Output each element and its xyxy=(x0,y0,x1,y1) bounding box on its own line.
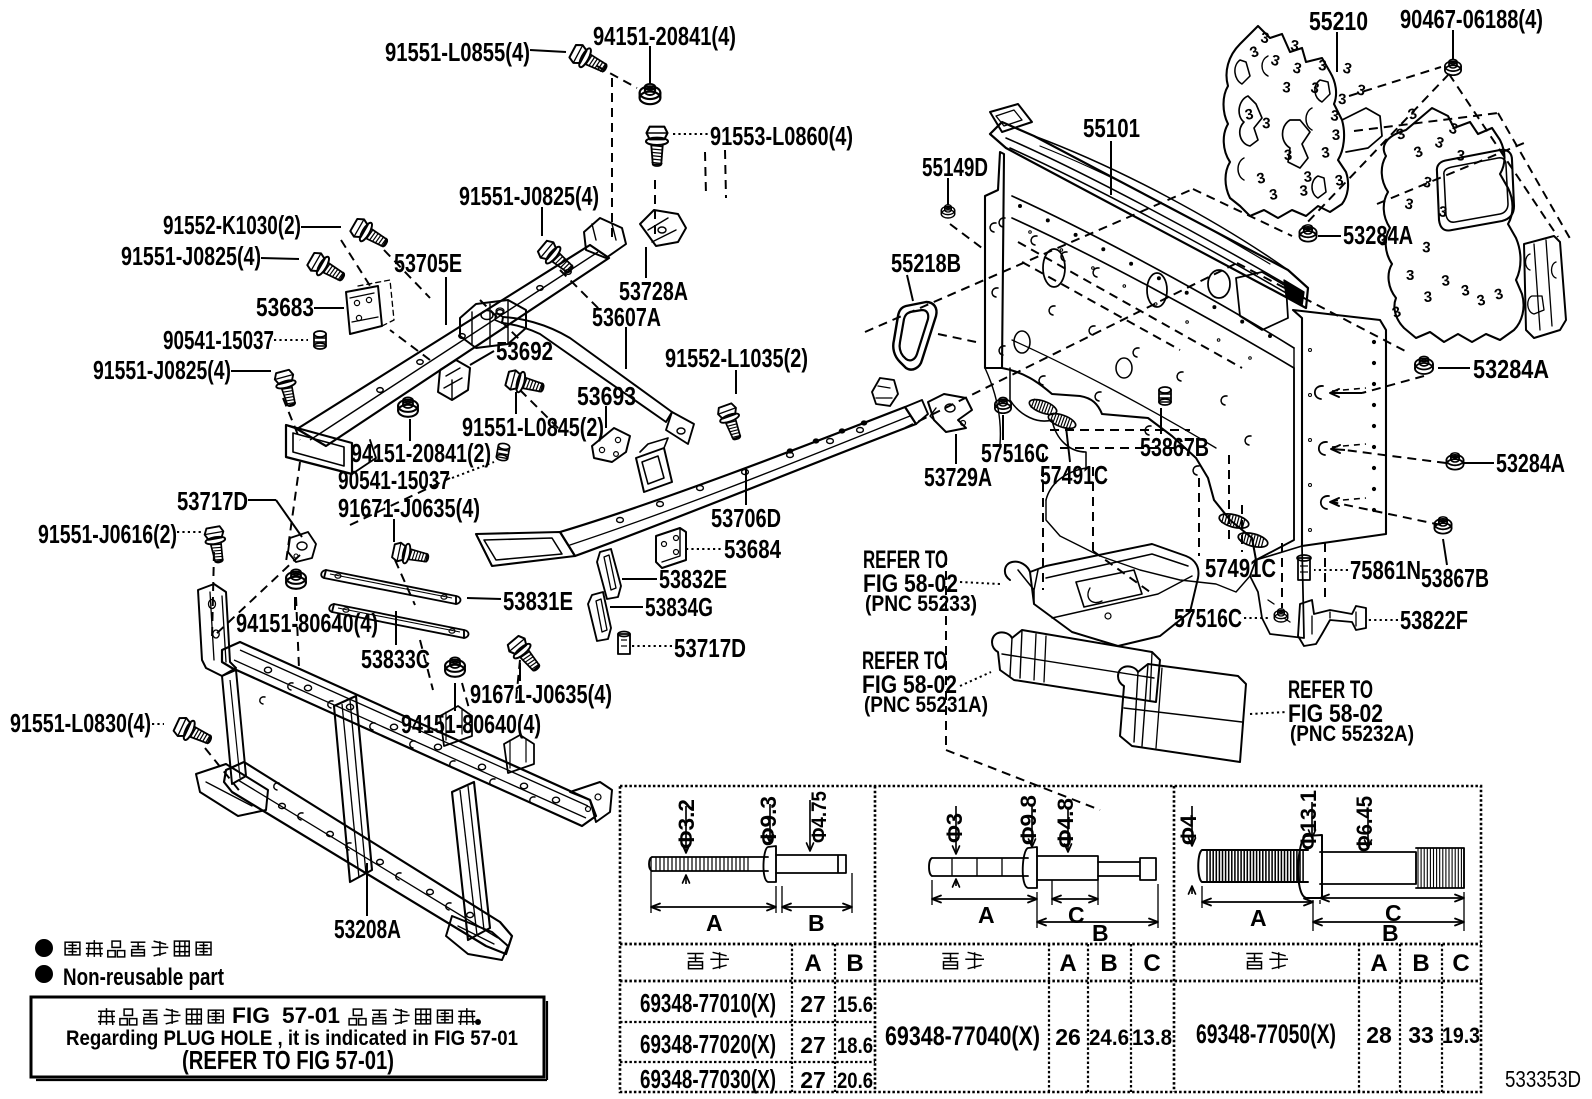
svg-text:69348-77050(X): 69348-77050(X) xyxy=(1196,1019,1336,1049)
svg-text:53867B: 53867B xyxy=(1140,432,1209,462)
svg-text:53692: 53692 xyxy=(496,336,553,366)
svg-text:53831E: 53831E xyxy=(503,586,573,616)
svg-text:24.6: 24.6 xyxy=(1089,1025,1129,1050)
svg-text:53683: 53683 xyxy=(256,292,314,322)
svg-text:Non-reusable part: Non-reusable part xyxy=(63,964,224,991)
svg-text:20.6: 20.6 xyxy=(837,1068,873,1093)
svg-text:53607A: 53607A xyxy=(592,302,661,332)
svg-text:(PNC 55233): (PNC 55233) xyxy=(865,591,977,616)
svg-text:3: 3 xyxy=(1318,57,1328,75)
svg-text:27: 27 xyxy=(800,1067,826,1093)
svg-text:26: 26 xyxy=(1055,1024,1081,1050)
svg-text:53832E: 53832E xyxy=(659,564,727,594)
svg-text:C: C xyxy=(1452,950,1469,977)
svg-text:57-01: 57-01 xyxy=(282,1003,340,1028)
svg-text:94151-80640(4): 94151-80640(4) xyxy=(401,709,541,739)
svg-text:Φ9.8: Φ9.8 xyxy=(1016,795,1041,845)
svg-text:53684: 53684 xyxy=(724,534,781,564)
svg-text:3: 3 xyxy=(1456,147,1466,165)
svg-text:53693: 53693 xyxy=(577,381,636,411)
svg-text:91551-J0616(2): 91551-J0616(2) xyxy=(38,519,177,549)
svg-text:C: C xyxy=(1068,902,1085,928)
svg-text:55149D: 55149D xyxy=(922,152,988,182)
svg-text:94151-20841(4): 94151-20841(4) xyxy=(593,21,736,51)
svg-text:18.6: 18.6 xyxy=(837,1033,873,1058)
svg-text:3: 3 xyxy=(1299,182,1309,200)
svg-text:3: 3 xyxy=(1338,91,1347,108)
svg-text:C: C xyxy=(1143,950,1160,977)
svg-text:53284A: 53284A xyxy=(1496,448,1565,478)
svg-text:3: 3 xyxy=(1406,267,1414,284)
svg-text:3: 3 xyxy=(1332,127,1341,144)
svg-text:(REFER TO FIG 57-01): (REFER TO FIG 57-01) xyxy=(182,1045,394,1075)
svg-text:91552-K1030(2): 91552-K1030(2) xyxy=(163,210,301,240)
svg-text:91552-L1035(2): 91552-L1035(2) xyxy=(665,343,808,373)
svg-text:33: 33 xyxy=(1408,1022,1434,1048)
svg-text:90541-15037: 90541-15037 xyxy=(338,465,450,495)
svg-text:A: A xyxy=(706,910,723,936)
svg-text:3: 3 xyxy=(1282,79,1292,97)
svg-text:FIG: FIG xyxy=(232,1003,270,1028)
svg-text:91551-L0855(4): 91551-L0855(4) xyxy=(385,37,530,67)
svg-text:91551-J0825(4): 91551-J0825(4) xyxy=(459,181,599,211)
svg-text:A: A xyxy=(1250,905,1267,931)
svg-text:B: B xyxy=(808,910,825,936)
svg-text:B: B xyxy=(1382,920,1399,946)
svg-text:90467-06188(4): 90467-06188(4) xyxy=(1400,4,1543,34)
svg-text:3: 3 xyxy=(1262,115,1271,132)
svg-text:55218B: 55218B xyxy=(891,248,961,278)
svg-text:B: B xyxy=(1412,950,1429,977)
svg-text:91551-L0830(4): 91551-L0830(4) xyxy=(10,708,151,738)
svg-text:15.6: 15.6 xyxy=(837,992,873,1017)
svg-text:533353D: 533353D xyxy=(1505,1066,1581,1092)
svg-text:Φ13.1: Φ13.1 xyxy=(1296,790,1321,850)
svg-text:B: B xyxy=(1092,920,1109,946)
svg-text:3: 3 xyxy=(1284,147,1293,164)
svg-text:53706D: 53706D xyxy=(711,503,781,533)
svg-text:A: A xyxy=(1059,950,1076,977)
svg-text:69348-77030(X): 69348-77030(X) xyxy=(640,1064,776,1094)
svg-text:28: 28 xyxy=(1366,1022,1392,1048)
svg-text:53208A: 53208A xyxy=(334,914,401,944)
svg-text:19.3: 19.3 xyxy=(1442,1023,1480,1048)
svg-text:53284A: 53284A xyxy=(1473,354,1549,384)
svg-text:(PNC 55232A): (PNC 55232A) xyxy=(1290,721,1414,746)
svg-text:Φ4.8: Φ4.8 xyxy=(1053,798,1078,848)
svg-text:(PNC 55231A): (PNC 55231A) xyxy=(864,692,988,717)
svg-text:Φ4.75: Φ4.75 xyxy=(808,791,831,843)
svg-text:Φ3: Φ3 xyxy=(942,813,967,843)
svg-text:A: A xyxy=(804,950,821,977)
svg-text:53705E: 53705E xyxy=(394,248,462,278)
svg-text:Φ4: Φ4 xyxy=(1176,814,1201,845)
svg-text:3: 3 xyxy=(1441,272,1451,290)
svg-text:A: A xyxy=(1370,950,1387,977)
svg-text:91551-J0825(4): 91551-J0825(4) xyxy=(121,241,261,271)
svg-text:91553-L0860(4): 91553-L0860(4) xyxy=(710,121,853,151)
svg-text:91551-J0825(4): 91551-J0825(4) xyxy=(93,355,231,385)
svg-text:Φ6.45: Φ6.45 xyxy=(1352,796,1377,852)
svg-text:53717D: 53717D xyxy=(177,486,248,516)
svg-text:69348-77010(X): 69348-77010(X) xyxy=(640,988,776,1018)
svg-text:3: 3 xyxy=(1423,289,1432,306)
svg-text:53867B: 53867B xyxy=(1421,563,1489,593)
svg-text:69348-77020(X): 69348-77020(X) xyxy=(640,1029,776,1059)
svg-text:91671-J0635(4): 91671-J0635(4) xyxy=(470,679,612,709)
svg-text:53717D: 53717D xyxy=(674,633,746,663)
svg-text:57491C: 57491C xyxy=(1040,460,1108,490)
svg-text:53833C: 53833C xyxy=(361,644,430,674)
svg-text:13.8: 13.8 xyxy=(1132,1025,1172,1050)
svg-text:53729A: 53729A xyxy=(924,462,992,492)
svg-text:75861N: 75861N xyxy=(1350,555,1421,585)
svg-text:53822F: 53822F xyxy=(1400,605,1468,635)
svg-text:69348-77040(X): 69348-77040(X) xyxy=(885,1021,1040,1051)
svg-text:57516C: 57516C xyxy=(1174,603,1242,633)
svg-text:94151-20841(2): 94151-20841(2) xyxy=(351,438,491,468)
svg-text:27: 27 xyxy=(800,991,826,1017)
svg-text:94151-80640(4): 94151-80640(4) xyxy=(236,608,378,638)
svg-text:B: B xyxy=(846,950,863,977)
svg-text:55101: 55101 xyxy=(1083,113,1140,143)
svg-text:27: 27 xyxy=(800,1032,826,1058)
svg-text:53284A: 53284A xyxy=(1343,220,1413,250)
svg-text:A: A xyxy=(978,902,995,928)
svg-text:57491C: 57491C xyxy=(1205,553,1276,583)
svg-text:53834G: 53834G xyxy=(645,592,713,622)
svg-text:91671-J0635(4): 91671-J0635(4) xyxy=(338,493,480,523)
svg-text:B: B xyxy=(1100,950,1117,977)
svg-text:55210: 55210 xyxy=(1309,6,1368,36)
svg-text:3: 3 xyxy=(1422,239,1431,256)
svg-text:90541-15037: 90541-15037 xyxy=(163,325,274,355)
